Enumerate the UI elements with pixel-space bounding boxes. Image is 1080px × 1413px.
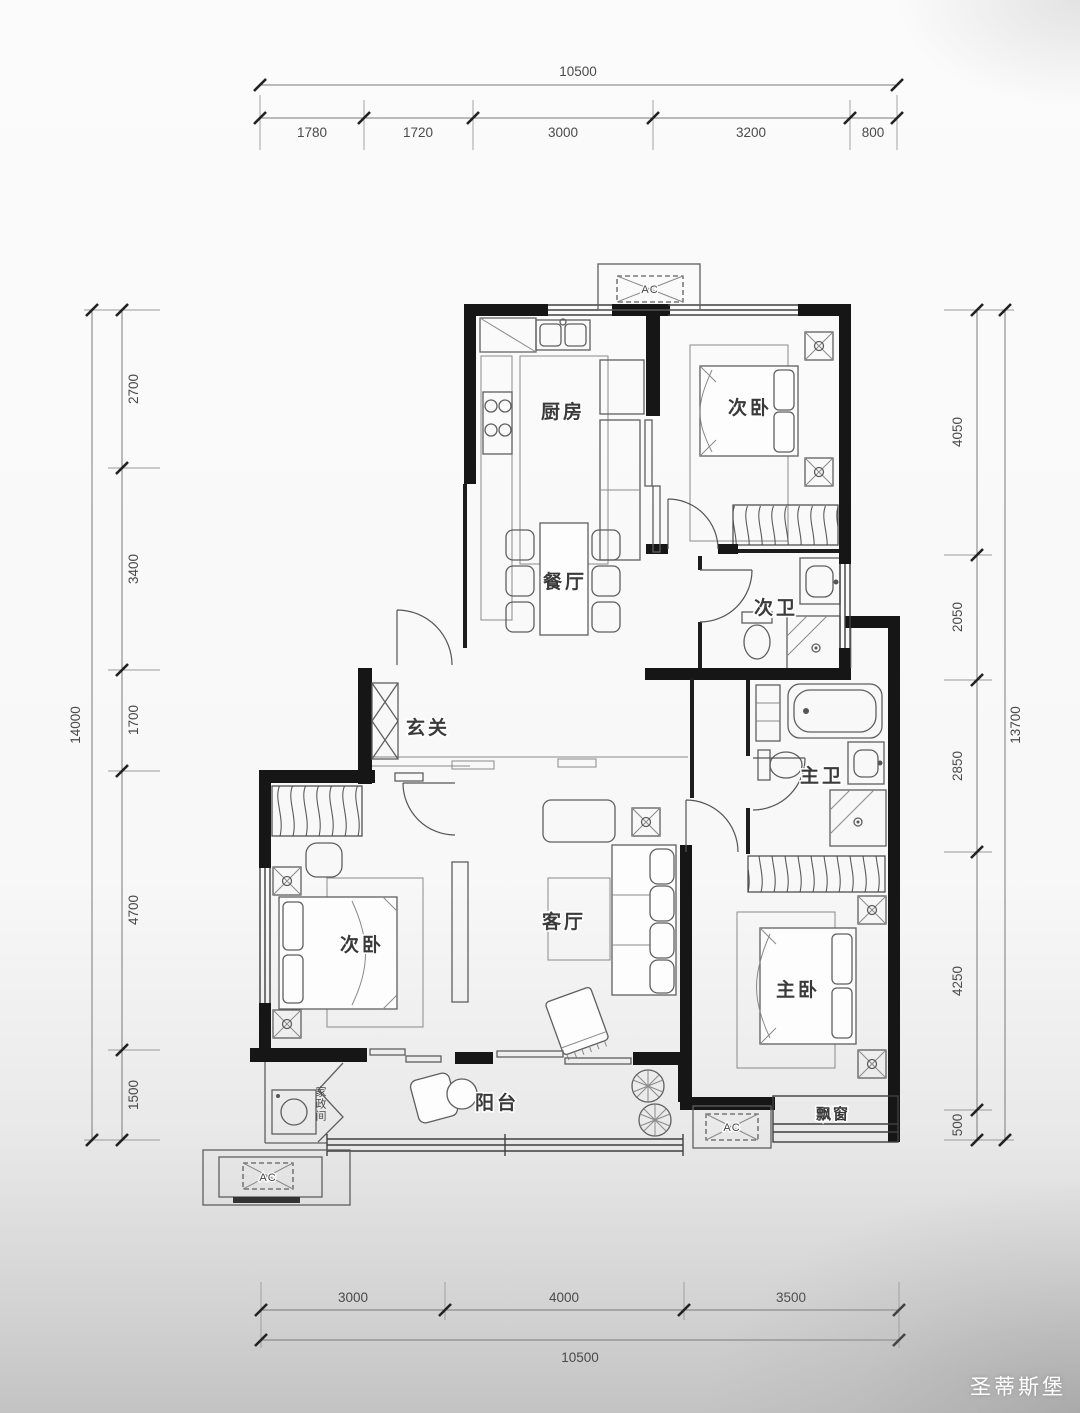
dim-left-seg5: 1500 [126, 1080, 141, 1110]
room-label-bay-window: 飘窗 [816, 1105, 850, 1123]
dim-top-total: 10500 [559, 64, 597, 79]
plant [632, 1070, 664, 1102]
dimension-right: 13700 4050 2050 2850 4250 500 [944, 304, 1023, 1146]
tv-panel [452, 862, 468, 1002]
ac-label-bottom-left: AC [259, 1172, 276, 1184]
dim-right-seg1: 4050 [950, 417, 965, 447]
entry-door [397, 610, 452, 665]
dimension-top: 10500 1780 1720 3000 3200 800 [254, 64, 903, 150]
closet [733, 505, 838, 545]
threshold-lines [372, 757, 688, 769]
window-bath-secondary [840, 564, 850, 648]
room-label-laundry: 家政间 [314, 1085, 327, 1122]
dimension-bottom: 3000 4000 3500 10500 [255, 1282, 905, 1365]
bedroom-left-door [395, 773, 455, 835]
dim-right-seg5: 500 [950, 1114, 965, 1137]
dim-right-seg4: 4250 [950, 966, 965, 996]
dim-left-seg2: 3400 [126, 554, 141, 584]
ac-label-bottom-middle: AC [723, 1122, 740, 1134]
dimension-left: 14000 2700 3400 1700 4700 1500 [68, 304, 160, 1146]
bedroom-left-balcony-door [370, 1049, 441, 1062]
shoe-cabinet [372, 683, 398, 759]
bedroom-top-furniture [700, 332, 838, 545]
plant [639, 1104, 671, 1136]
dim-bottom-total: 10500 [561, 1350, 599, 1365]
nightstand [273, 1010, 301, 1038]
cabinet [543, 800, 615, 842]
dim-top-seg2: 1720 [403, 125, 433, 140]
toilet-master [770, 752, 802, 778]
room-label-entry: 玄关 [406, 716, 450, 739]
coffee-table [545, 986, 611, 1061]
bedroom-master-door [686, 800, 738, 852]
room-label-bedroom-master: 主卧 [776, 979, 820, 1001]
nightstand [805, 332, 833, 360]
nightstand [805, 458, 833, 486]
dim-left-total: 14000 [68, 706, 83, 744]
dim-bottom-seg1: 3000 [338, 1290, 368, 1305]
kitchen-sliding-door [645, 420, 660, 552]
bath-secondary-door [700, 570, 752, 622]
room-label-bath-secondary: 次卫 [754, 596, 798, 619]
dim-top-seg5: 800 [862, 125, 885, 140]
dim-left-seg3: 1700 [126, 705, 141, 735]
nightstand [858, 896, 886, 924]
room-label-balcony: 阳台 [475, 1091, 519, 1114]
room-label-kitchen: 厨房 [541, 400, 585, 423]
room-label-bedroom-top: 次卧 [728, 396, 772, 419]
dim-top-seg4: 3200 [736, 125, 766, 140]
dim-top-seg1: 1780 [297, 125, 327, 140]
toilet [744, 625, 770, 659]
bath-master-door [753, 758, 805, 810]
room-label-living: 客厅 [542, 910, 586, 933]
dim-bottom-seg2: 4000 [549, 1290, 579, 1305]
dim-left-seg1: 2700 [126, 374, 141, 404]
dim-right-total: 13700 [1008, 706, 1023, 744]
dim-bottom-seg3: 3500 [776, 1290, 806, 1305]
decor-box [632, 808, 660, 836]
nightstand [273, 867, 301, 895]
room-label-bedroom-left: 次卧 [340, 933, 384, 956]
dim-top-seg3: 3000 [548, 125, 578, 140]
dim-right-seg3: 2850 [950, 751, 965, 781]
nightstand [858, 1050, 886, 1078]
ac-platform-bottom-middle: AC [693, 1106, 771, 1148]
brand-watermark: 圣蒂斯堡 [970, 1371, 1066, 1401]
window-balcony [327, 1134, 683, 1156]
ac-label-top: AC [641, 284, 658, 296]
chair [306, 843, 342, 877]
ac-platform-top: AC [598, 264, 700, 310]
bedroom-left-furniture [272, 786, 397, 1038]
dim-left-seg4: 4700 [126, 895, 141, 925]
shower [787, 616, 840, 672]
floor-plan-canvas: 10500 1780 1720 3000 3200 800 3000 4000 … [0, 0, 1080, 1413]
window-bedroom-left [260, 868, 270, 1003]
room-label-bath-master: 主卫 [800, 765, 844, 787]
ac-platform-bottom-left: AC [203, 1150, 350, 1205]
fridge [600, 360, 644, 414]
dim-right-seg2: 2050 [950, 602, 965, 632]
room-label-dining: 餐厅 [543, 570, 587, 593]
closet-master [748, 856, 885, 892]
closet-left [272, 786, 362, 836]
